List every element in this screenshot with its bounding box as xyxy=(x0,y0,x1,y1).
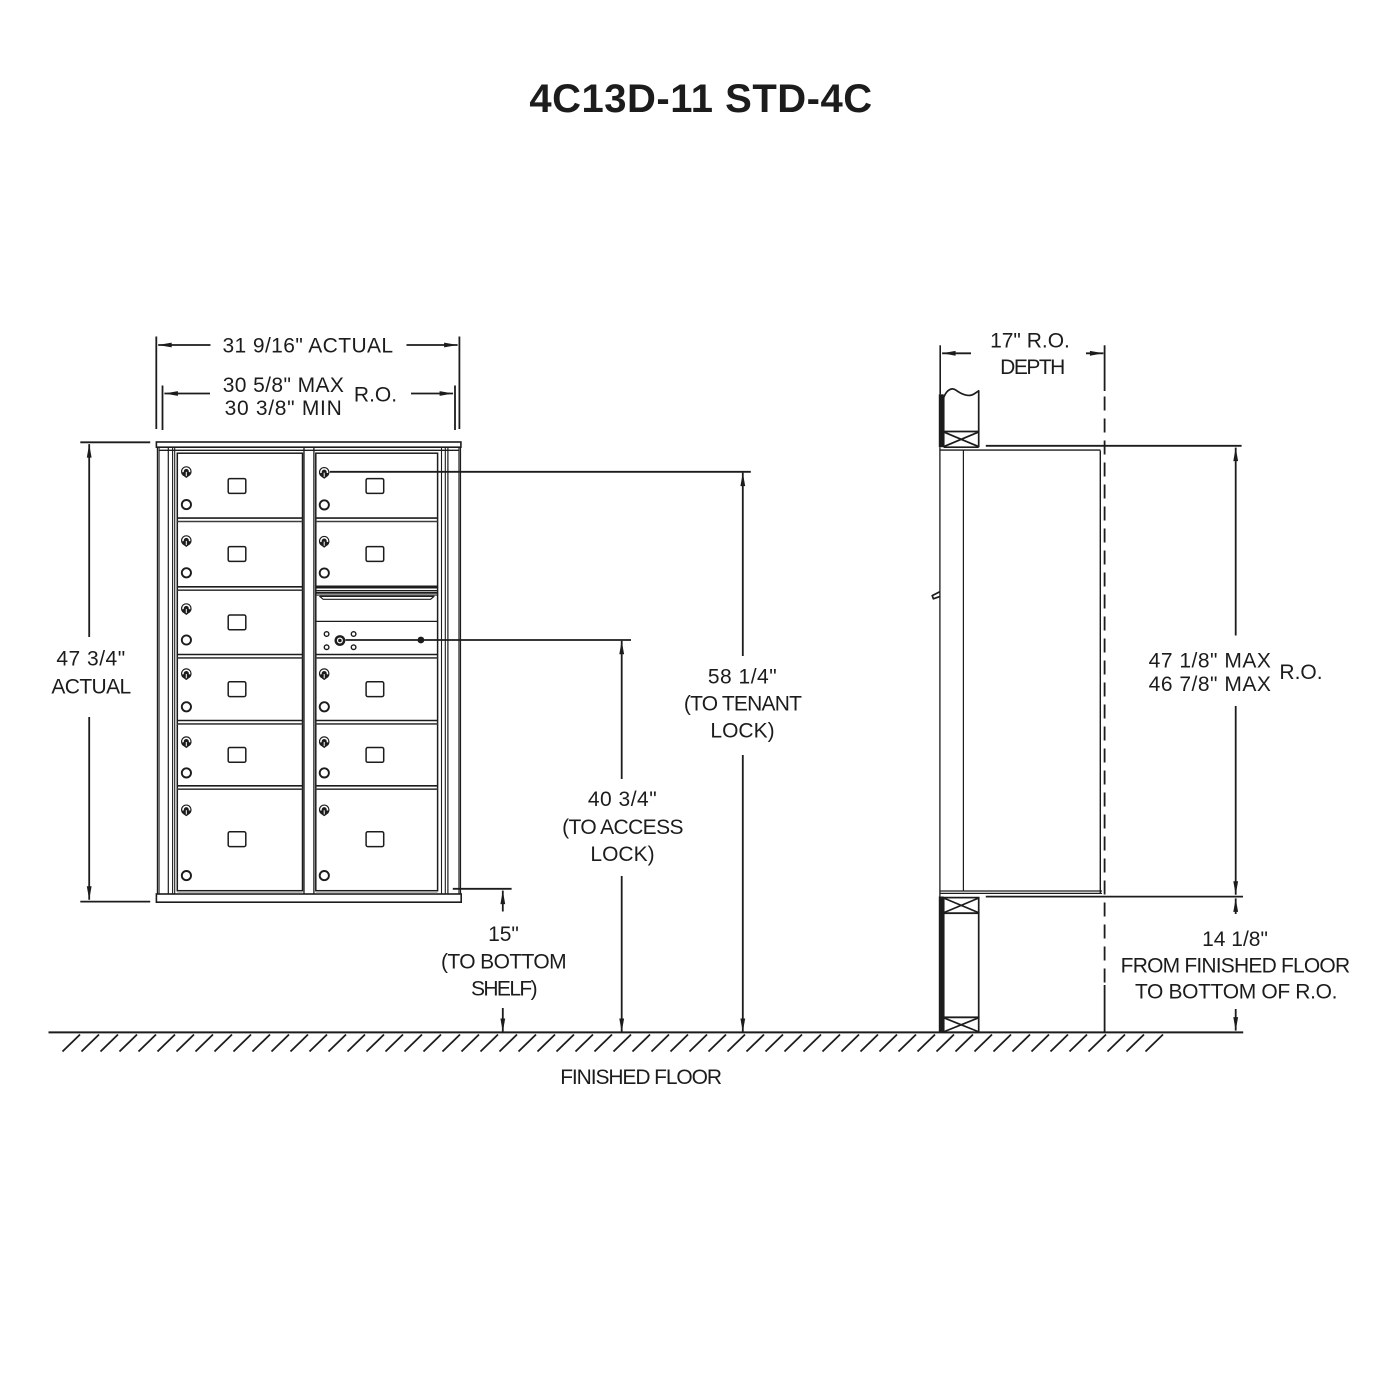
svg-text:46 7/8" MAX: 46 7/8" MAX xyxy=(1149,673,1272,696)
svg-text:R.O.: R.O. xyxy=(354,384,397,407)
svg-text:14 1/8": 14 1/8" xyxy=(1202,928,1268,951)
svg-text:FINISHED FLOOR: FINISHED FLOOR xyxy=(560,1066,722,1089)
svg-text:LOCK): LOCK) xyxy=(710,720,774,743)
svg-text:(TO TENANT: (TO TENANT xyxy=(684,693,802,716)
svg-text:(TO ACCESS: (TO ACCESS xyxy=(562,816,683,839)
svg-text:30 3/8" MIN: 30 3/8" MIN xyxy=(225,397,343,420)
svg-text:58 1/4": 58 1/4" xyxy=(708,666,777,689)
svg-text:DEPTH: DEPTH xyxy=(1000,356,1064,379)
svg-text:FROM FINISHED FLOOR: FROM FINISHED FLOOR xyxy=(1121,955,1350,978)
svg-text:R.O.: R.O. xyxy=(1279,661,1322,684)
svg-text:17" R.O.: 17" R.O. xyxy=(990,330,1070,353)
svg-text:SHELF): SHELF) xyxy=(471,978,537,1001)
svg-text:(TO BOTTOM: (TO BOTTOM xyxy=(441,951,566,974)
svg-text:15": 15" xyxy=(488,923,519,946)
svg-text:TO BOTTOM OF R.O.: TO BOTTOM OF R.O. xyxy=(1135,981,1337,1004)
svg-text:30 5/8" MAX: 30 5/8" MAX xyxy=(223,374,345,397)
svg-text:47 1/8" MAX: 47 1/8" MAX xyxy=(1149,650,1272,673)
svg-text:47 3/4": 47 3/4" xyxy=(56,648,125,671)
svg-text:LOCK): LOCK) xyxy=(590,843,654,866)
svg-text:ACTUAL: ACTUAL xyxy=(51,676,130,699)
svg-text:4C13D-11 STD-4C: 4C13D-11 STD-4C xyxy=(529,77,872,121)
svg-text:40 3/4": 40 3/4" xyxy=(588,788,657,811)
svg-text:31 9/16" ACTUAL: 31 9/16" ACTUAL xyxy=(222,335,393,358)
